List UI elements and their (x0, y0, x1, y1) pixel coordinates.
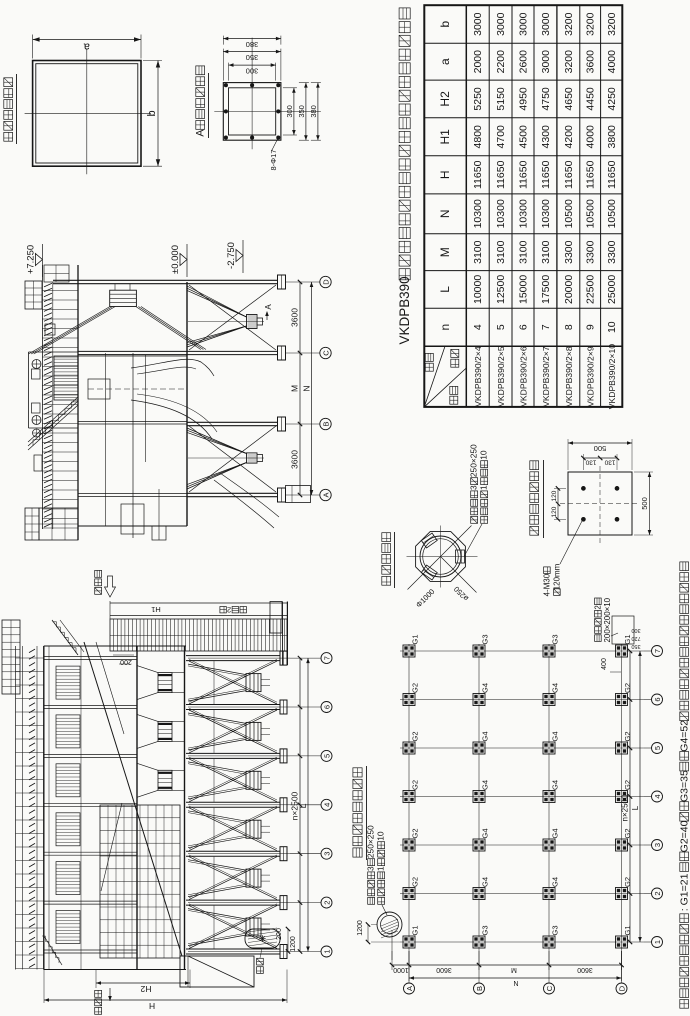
svg-text:G2: G2 (411, 828, 420, 838)
svg-text:10500: 10500 (606, 199, 618, 228)
svg-text:4500: 4500 (518, 125, 530, 149)
svg-text:G2: G2 (411, 683, 420, 693)
svg-text:b: b (146, 110, 158, 116)
svg-text:3000: 3000 (518, 12, 530, 36)
svg-text:G4=52: G4=52 (678, 720, 690, 752)
svg-text:6: 6 (653, 697, 662, 701)
svg-text:2: 2 (653, 891, 662, 895)
svg-text:N: N (438, 209, 452, 218)
svg-text:3100: 3100 (495, 240, 507, 264)
svg-text:380: 380 (246, 40, 259, 49)
svg-text:H: H (438, 170, 452, 179)
svg-text:350: 350 (246, 53, 259, 62)
svg-text:3300: 3300 (606, 240, 618, 264)
svg-text:3000: 3000 (472, 12, 484, 36)
svg-text:6: 6 (518, 324, 530, 330)
svg-text:G3=35: G3=35 (678, 770, 690, 802)
svg-text:11650: 11650 (518, 160, 530, 189)
svg-text:G1: G1 (411, 634, 420, 644)
svg-text:3200: 3200 (563, 50, 575, 74)
svg-text:M: M (511, 966, 517, 973)
svg-text:G2: G2 (623, 683, 632, 693)
svg-text:11650: 11650 (472, 160, 484, 189)
svg-text:2000: 2000 (472, 50, 484, 74)
svg-text:25000: 25000 (606, 275, 618, 304)
svg-text:3600: 3600 (585, 50, 597, 74)
svg-text:A: A (321, 492, 330, 497)
svg-text:4300: 4300 (540, 125, 552, 149)
svg-text:N: N (513, 979, 518, 986)
svg-text:a: a (83, 41, 90, 53)
svg-text:3: 3 (653, 843, 662, 847)
svg-text:G2: G2 (411, 877, 420, 887)
svg-text:Φ1000: Φ1000 (414, 587, 436, 609)
svg-text:1: 1 (653, 940, 662, 944)
svg-text:2: 2 (593, 605, 602, 610)
svg-text:500: 500 (594, 444, 607, 453)
svg-text:11650: 11650 (606, 160, 618, 189)
svg-text:4000: 4000 (585, 125, 597, 149)
svg-text:G2=40: G2=40 (678, 820, 690, 852)
svg-text:3100: 3100 (540, 240, 552, 264)
svg-text:10300: 10300 (540, 199, 552, 228)
svg-text:10500: 10500 (563, 199, 575, 228)
svg-text:n: n (438, 324, 452, 331)
svg-text:G4: G4 (481, 683, 490, 693)
svg-text:H: H (149, 1001, 155, 1011)
svg-text:22500: 22500 (585, 275, 597, 304)
svg-text:L: L (631, 805, 640, 810)
svg-text:4-M30: 4-M30 (542, 573, 551, 596)
svg-text:8: 8 (563, 324, 575, 330)
svg-text:4: 4 (472, 324, 484, 330)
svg-text:11650: 11650 (563, 160, 575, 189)
svg-text:A: A (195, 129, 207, 137)
svg-text:7: 7 (540, 324, 552, 330)
svg-text:400: 400 (601, 658, 608, 670)
svg-text:A: A (264, 304, 273, 310)
svg-text:11650: 11650 (585, 160, 597, 189)
svg-text:M: M (438, 247, 452, 257)
svg-text:7: 7 (653, 649, 662, 653)
svg-text:2: 2 (322, 901, 331, 905)
svg-text:VKDPB390/2×9: VKDPB390/2×9 (586, 346, 596, 407)
svg-text:380: 380 (309, 105, 318, 118)
svg-text:G2: G2 (623, 877, 632, 887)
svg-text:: G1=21: : G1=21 (678, 873, 690, 911)
svg-text:3000: 3000 (540, 50, 552, 74)
svg-text:C: C (321, 350, 330, 356)
svg-text:3: 3 (469, 485, 479, 490)
svg-text:4450: 4450 (585, 87, 597, 111)
svg-text:5: 5 (322, 754, 331, 758)
svg-text:G4: G4 (481, 877, 490, 887)
svg-text:L: L (438, 286, 452, 293)
svg-text:10300: 10300 (518, 199, 530, 228)
svg-text:H1: H1 (151, 605, 161, 614)
svg-text:3100: 3100 (472, 240, 484, 264)
svg-text:4: 4 (653, 794, 662, 798)
svg-text:D: D (617, 985, 626, 991)
svg-text:3000: 3000 (495, 12, 507, 36)
svg-text:250×250: 250×250 (366, 825, 376, 858)
svg-text:8-Φ17: 8-Φ17 (269, 150, 278, 171)
svg-text:3100: 3100 (518, 240, 530, 264)
svg-text:3200: 3200 (563, 12, 575, 36)
svg-text:6: 6 (322, 705, 331, 709)
svg-text:VKDPB390/2×10: VKDPB390/2×10 (607, 344, 617, 409)
svg-text:120: 120 (551, 506, 558, 517)
svg-text:1000: 1000 (393, 966, 409, 973)
svg-text:VKDPB390/2×6: VKDPB390/2×6 (519, 346, 529, 407)
svg-text:20000: 20000 (563, 275, 575, 304)
svg-text:3600: 3600 (436, 966, 452, 973)
svg-text:b: b (438, 21, 452, 28)
svg-text:B: B (475, 986, 484, 991)
svg-text:9: 9 (585, 324, 597, 330)
svg-text:350: 350 (297, 105, 306, 118)
svg-text:15000: 15000 (518, 275, 530, 304)
svg-text:130: 130 (585, 459, 596, 466)
svg-text:D: D (321, 279, 330, 285)
svg-text:4750: 4750 (540, 87, 552, 111)
svg-text:3200: 3200 (606, 12, 618, 36)
svg-text:G2: G2 (411, 731, 420, 741)
svg-text:-2.750: -2.750 (226, 242, 237, 269)
svg-text:3600: 3600 (290, 450, 300, 469)
svg-text:G2: G2 (623, 780, 632, 790)
svg-text:3200: 3200 (585, 12, 597, 36)
svg-text:2600: 2600 (518, 50, 530, 74)
svg-text:H2: H2 (140, 984, 151, 994)
svg-text:G4: G4 (551, 731, 560, 741)
svg-text:250×250: 250×250 (469, 444, 479, 477)
svg-text:10: 10 (376, 831, 386, 841)
svg-text:G2: G2 (411, 780, 420, 790)
svg-text:G2: G2 (623, 731, 632, 741)
svg-text:B: B (321, 421, 330, 426)
svg-text:350: 350 (631, 643, 640, 649)
svg-text:3: 3 (322, 852, 331, 856)
svg-text:1200: 1200 (290, 936, 297, 952)
svg-text:4800: 4800 (472, 125, 484, 149)
svg-text:H2: H2 (438, 91, 452, 107)
svg-text:5: 5 (653, 746, 662, 750)
svg-text:7: 7 (322, 656, 331, 660)
svg-text:G3: G3 (551, 925, 560, 935)
svg-text:120: 120 (551, 490, 558, 501)
svg-text:G4: G4 (551, 683, 560, 693)
svg-text:G4: G4 (481, 731, 490, 741)
svg-text:G4: G4 (551, 828, 560, 838)
svg-text:ø250: ø250 (452, 585, 470, 603)
svg-text:+7.250: +7.250 (25, 245, 36, 274)
svg-text:1200: 1200 (357, 920, 364, 936)
svg-text:11650: 11650 (540, 160, 552, 189)
svg-text:10500: 10500 (585, 199, 597, 228)
svg-text:a: a (438, 58, 452, 65)
svg-text:G3: G3 (551, 634, 560, 644)
svg-text:300: 300 (631, 627, 640, 633)
svg-text:G1: G1 (623, 634, 632, 644)
svg-text:5250: 5250 (472, 87, 484, 111)
svg-text:4650: 4650 (563, 87, 575, 111)
svg-text:3300: 3300 (585, 240, 597, 264)
svg-text:VKDPB390/2×4: VKDPB390/2×4 (473, 346, 483, 407)
svg-text:C: C (545, 985, 554, 991)
svg-text:G1: G1 (623, 925, 632, 935)
svg-text:A: A (405, 986, 414, 991)
svg-text:G1: G1 (411, 925, 420, 935)
svg-text:4700: 4700 (495, 125, 507, 149)
svg-text:N: N (302, 385, 312, 391)
svg-text:300: 300 (285, 105, 294, 118)
svg-text:H1: H1 (438, 129, 452, 145)
svg-text:1: 1 (376, 866, 386, 871)
svg-text:10300: 10300 (495, 199, 507, 228)
svg-text:3800: 3800 (606, 125, 618, 149)
svg-text:G3: G3 (481, 925, 490, 935)
svg-text:G2: G2 (623, 828, 632, 838)
svg-text:10300: 10300 (472, 199, 484, 228)
svg-text:500: 500 (640, 497, 649, 510)
svg-text:200: 200 (276, 928, 283, 940)
svg-text:5150: 5150 (495, 87, 507, 111)
svg-text:G4: G4 (551, 780, 560, 790)
svg-text:17500: 17500 (540, 275, 552, 304)
svg-text:M: M (290, 385, 300, 392)
svg-text:L: L (298, 803, 308, 808)
svg-text:G4: G4 (481, 828, 490, 838)
svg-text:10000: 10000 (472, 275, 484, 304)
svg-text:10: 10 (479, 450, 489, 460)
svg-text:4250: 4250 (606, 87, 618, 111)
svg-text:VKDPB390: VKDPB390 (397, 276, 412, 344)
svg-text:720: 720 (631, 635, 640, 641)
svg-text:G4: G4 (481, 780, 490, 790)
svg-text:±0.000: ±0.000 (170, 245, 181, 274)
svg-text:1: 1 (479, 485, 489, 490)
svg-text:10: 10 (606, 321, 618, 333)
svg-text:3: 3 (366, 866, 376, 871)
svg-text:4000: 4000 (606, 50, 618, 74)
svg-text:3600: 3600 (577, 966, 593, 973)
svg-text:200×200×10: 200×200×10 (603, 597, 612, 642)
svg-text:130: 130 (604, 459, 615, 466)
svg-text:VKDPB390/2×5: VKDPB390/2×5 (496, 346, 506, 407)
svg-text:12500: 12500 (495, 275, 507, 304)
svg-text:4: 4 (322, 803, 331, 807)
svg-text:4200: 4200 (563, 125, 575, 149)
svg-text:3300: 3300 (563, 240, 575, 264)
svg-text:VKDPB390/2×8: VKDPB390/2×8 (564, 346, 574, 407)
svg-text:G3: G3 (481, 634, 490, 644)
svg-text:1: 1 (322, 949, 331, 953)
svg-text:3000: 3000 (540, 12, 552, 36)
svg-text:3600: 3600 (290, 308, 300, 327)
svg-text:2200: 2200 (495, 50, 507, 74)
svg-text:G4: G4 (551, 877, 560, 887)
svg-text:n×2500: n×2500 (621, 794, 630, 821)
svg-text:5: 5 (495, 324, 507, 330)
svg-text:2: 2 (227, 605, 231, 614)
svg-text:120mm: 120mm (552, 563, 561, 590)
svg-text:4950: 4950 (518, 87, 530, 111)
svg-text:300: 300 (246, 67, 259, 76)
svg-text:VKDPB390/2×7: VKDPB390/2×7 (541, 346, 551, 407)
svg-text:11650: 11650 (495, 160, 507, 189)
